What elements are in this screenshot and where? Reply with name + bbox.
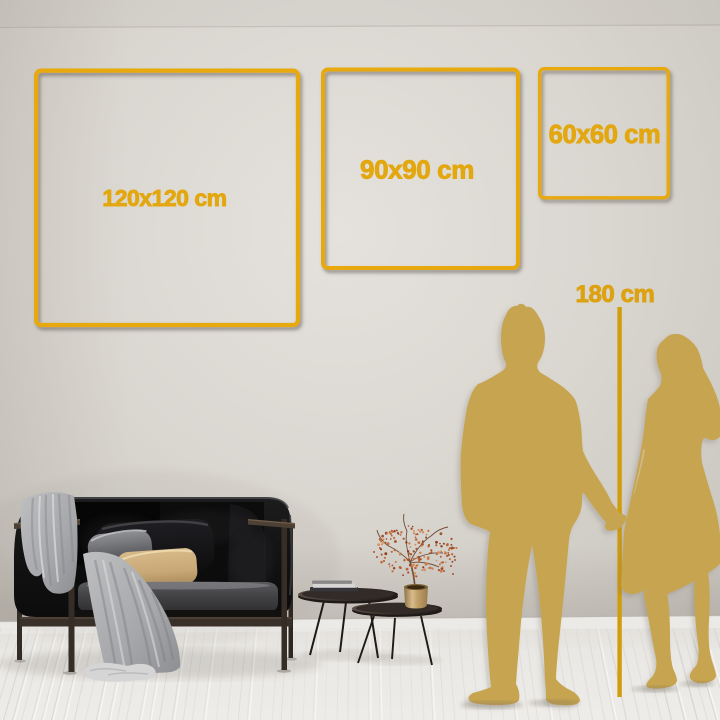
svg-text:180 cm: 180 cm [576, 281, 655, 308]
svg-text:120x120 cm: 120x120 cm [102, 185, 226, 211]
svg-text:90x90 cm: 90x90 cm [360, 155, 474, 185]
svg-text:60x60 cm: 60x60 cm [549, 121, 661, 149]
